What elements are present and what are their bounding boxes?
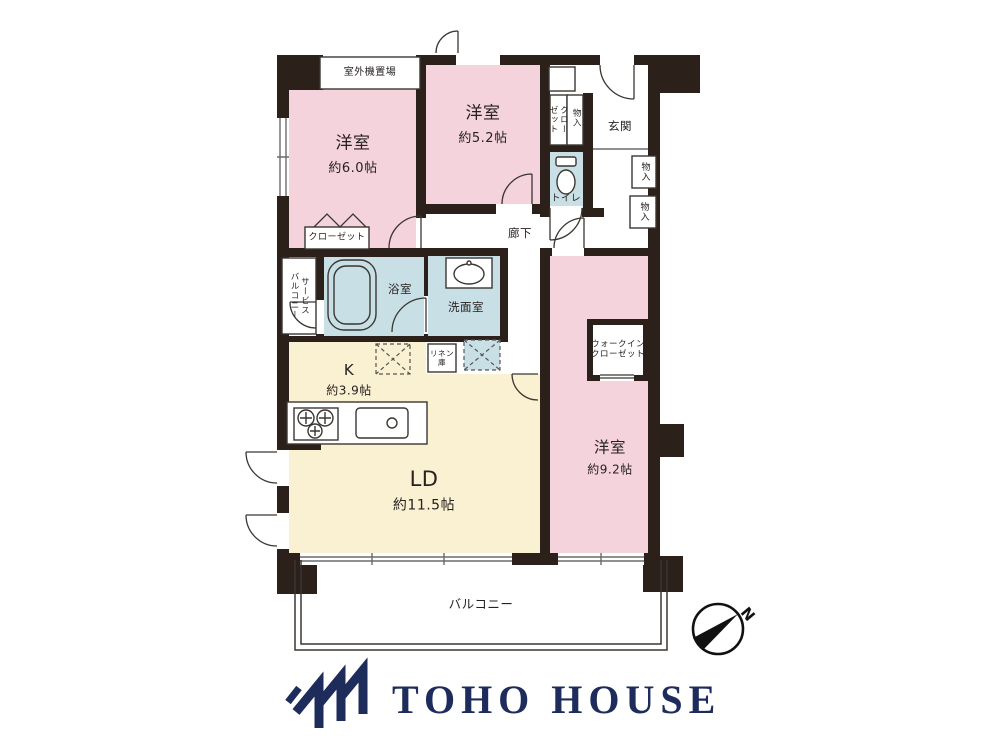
bedroom2-name: 洋室 (466, 104, 501, 125)
kitchen-sink-icon (356, 408, 408, 438)
bedroom1-name: 洋室 (336, 134, 371, 155)
hallway-label: 廊下 (508, 226, 532, 240)
washroom-label: 洗面室 (448, 300, 484, 314)
service-balcony-label: サービス バルコニー (289, 272, 310, 320)
closet-lower-label: クローゼット (308, 233, 365, 244)
floorplan-page: N 室外機置場 洋室 約6.0帖 洋室 約5.2帖 クロー ゼット 物入 玄関 … (0, 0, 1000, 750)
walk-in-closet-label: ウォークイン クローゼット (591, 340, 645, 361)
entrance-door (600, 65, 634, 99)
washbasin-icon (446, 258, 492, 288)
kitchen-name: K (344, 361, 354, 379)
bathroom-label: 浴室 (388, 282, 412, 296)
living-dining-name: LD (410, 467, 439, 493)
living-casement-window-2 (246, 515, 277, 546)
entrance-label: 玄関 (608, 119, 632, 133)
balcony-label: バルコニー (449, 596, 514, 611)
closet-upper-label: クロー ゼット (548, 106, 569, 135)
bedroom1-size: 約6.0帖 (328, 161, 377, 177)
brand-wordmark: TOHO HOUSE (392, 676, 721, 723)
bedroom3-name: 洋室 (594, 439, 626, 458)
bedroom3-floor (550, 256, 648, 560)
stove-icon (294, 408, 338, 440)
compass-icon: N (693, 604, 759, 654)
living-dining-size: 約11.5帖 (393, 497, 455, 514)
porch-door (436, 31, 458, 53)
toilet-icon (556, 157, 576, 194)
living-casement-window-1 (246, 452, 277, 483)
toho-house-logo-icon (288, 670, 363, 728)
outdoor-unit-label: 室外機置場 (344, 67, 397, 79)
washer-space-dashed (464, 340, 500, 370)
bedroom2-size: 約5.2帖 (458, 131, 507, 147)
storage2-label: 物入 (639, 162, 650, 182)
toilet-label: トイレ (551, 193, 581, 205)
bedroom3-size: 約9.2帖 (587, 463, 633, 478)
storage3-label: 物入 (638, 202, 649, 222)
ldk-floor (289, 342, 540, 553)
storage1-label: 物入 (571, 109, 581, 128)
entry-alcove-box (549, 67, 575, 91)
linen-label: リネン 庫 (430, 349, 454, 367)
kitchen-size: 約3.9帖 (326, 384, 372, 399)
